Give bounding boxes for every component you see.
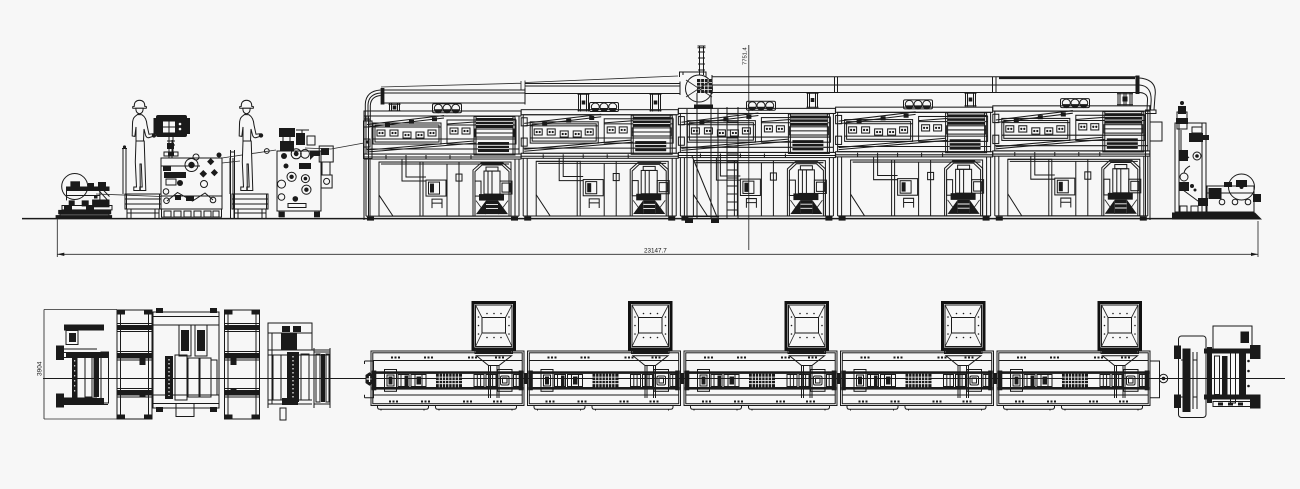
svg-text:3904: 3904 — [37, 361, 44, 376]
svg-text:23147.7: 23147.7 — [644, 248, 667, 255]
svg-text:7751.4: 7751.4 — [743, 46, 749, 65]
